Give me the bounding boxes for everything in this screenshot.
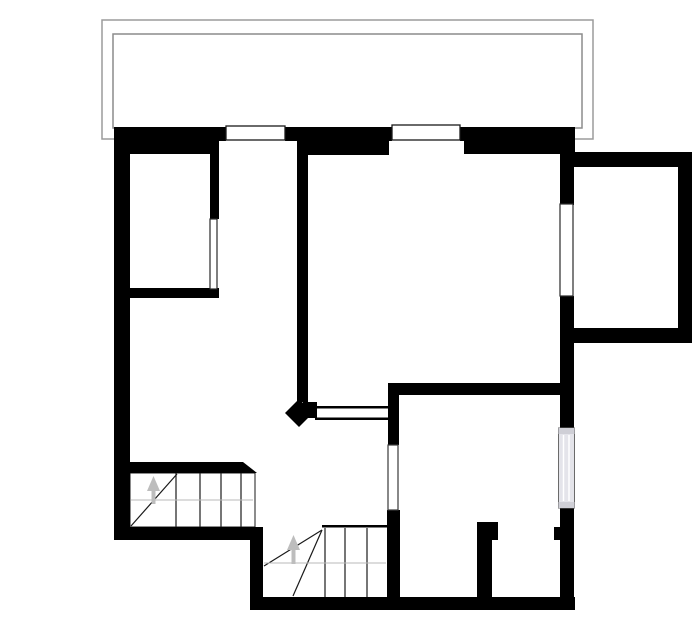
right-wall-mid — [560, 296, 574, 428]
stair2-up-arrow-head — [287, 535, 300, 550]
window-top-left — [226, 126, 285, 140]
balcony-inner-edge — [113, 34, 582, 128]
balcony-outer-edge — [102, 20, 593, 139]
floor-plan-canvas — [0, 0, 700, 644]
bedroom-top-wall — [388, 383, 562, 395]
layer-openings — [210, 125, 575, 510]
bottom-wall — [250, 597, 575, 610]
window-right-upper — [560, 204, 573, 296]
passage-top-jamb-line — [315, 406, 389, 409]
layer-balcony — [102, 20, 593, 139]
closet-partition — [210, 219, 217, 289]
bottom-left-wall — [114, 527, 263, 540]
doorway-opening-lower — [388, 445, 398, 510]
closet-right-wall — [210, 140, 219, 219]
window-right-lower-cap-top — [559, 428, 575, 434]
hall-center-wall — [297, 140, 308, 402]
layer-walls — [114, 127, 692, 610]
floor-plan-page — [0, 0, 700, 644]
stair2-edge-line — [322, 525, 387, 528]
stair1-top-wall-end — [243, 462, 257, 473]
top-wall-mid-inner — [297, 140, 389, 155]
compartment-right-jamb — [554, 527, 561, 540]
stair1-up-arrow-shaft — [152, 491, 156, 504]
passage-bottom-jamb-line — [315, 418, 389, 421]
right-wall-lower — [560, 508, 574, 610]
top-wall-mid — [285, 127, 392, 141]
stair2-up-arrow-shaft — [292, 550, 296, 564]
window-top-center — [392, 125, 460, 140]
window-right-lower-glazing — [559, 428, 575, 508]
top-wall-right-inner — [464, 140, 575, 154]
top-wall-left — [114, 127, 226, 141]
hall-wall-end-stub — [303, 402, 317, 418]
window-right-lower-cap-bottom — [559, 502, 575, 508]
annex-right-wall — [678, 152, 692, 343]
compartment-top-stub — [492, 522, 498, 540]
left-wall — [114, 128, 130, 540]
compartment-left-wall — [477, 522, 492, 610]
annex-top-wall — [560, 152, 692, 167]
top-wall-right — [460, 127, 575, 141]
closet-bottom-wall — [130, 288, 219, 298]
stair1-top-wall — [130, 462, 243, 473]
annex-bottom-wall — [573, 328, 692, 343]
stair2-right-wall — [387, 510, 400, 610]
